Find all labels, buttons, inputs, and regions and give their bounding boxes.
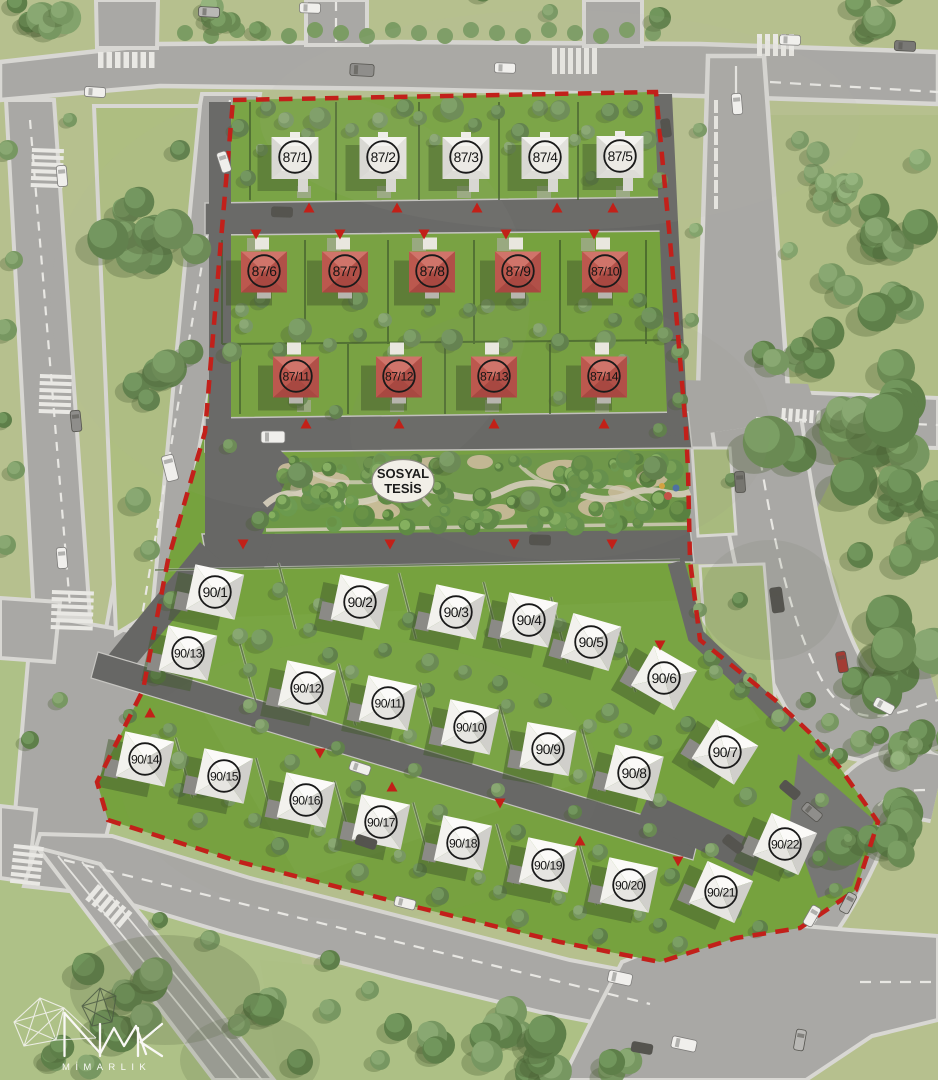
- svg-text:SOSYAL: SOSYAL: [377, 466, 429, 481]
- svg-text:90/4: 90/4: [517, 613, 543, 628]
- svg-text:87/10: 87/10: [591, 264, 620, 278]
- svg-text:87/4: 87/4: [533, 150, 559, 165]
- svg-text:90/16: 90/16: [292, 793, 321, 807]
- svg-text:87/13: 87/13: [480, 369, 509, 383]
- svg-text:90/3: 90/3: [444, 605, 470, 620]
- svg-text:87/11: 87/11: [282, 369, 310, 383]
- svg-text:90/21: 90/21: [707, 885, 736, 899]
- svg-text:90/20: 90/20: [615, 878, 644, 892]
- svg-text:90/22: 90/22: [771, 837, 800, 851]
- svg-text:90/12: 90/12: [293, 681, 322, 695]
- svg-text:90/5: 90/5: [579, 635, 605, 650]
- svg-text:90/11: 90/11: [374, 696, 402, 710]
- svg-text:87/8: 87/8: [420, 264, 446, 279]
- svg-text:87/14: 87/14: [590, 369, 619, 383]
- svg-text:87/9: 87/9: [506, 264, 532, 279]
- svg-text:90/1: 90/1: [203, 585, 228, 600]
- svg-text:90/17: 90/17: [367, 815, 396, 829]
- svg-text:90/13: 90/13: [174, 646, 203, 660]
- svg-text:87/3: 87/3: [454, 150, 480, 165]
- svg-text:90/10: 90/10: [456, 720, 485, 734]
- svg-text:90/14: 90/14: [131, 752, 160, 766]
- svg-text:90/15: 90/15: [210, 769, 239, 783]
- svg-text:90/6: 90/6: [652, 671, 678, 686]
- svg-text:90/7: 90/7: [713, 745, 738, 760]
- svg-text:90/8: 90/8: [622, 766, 648, 781]
- svg-text:87/1: 87/1: [283, 150, 308, 165]
- svg-text:87/7: 87/7: [333, 264, 358, 279]
- svg-text:87/6: 87/6: [252, 264, 278, 279]
- svg-text:90/9: 90/9: [536, 742, 562, 757]
- svg-text:90/19: 90/19: [534, 858, 563, 872]
- svg-text:TESİS: TESİS: [384, 481, 422, 496]
- svg-text:87/12: 87/12: [385, 369, 414, 383]
- svg-text:90/18: 90/18: [449, 836, 478, 850]
- svg-text:87/5: 87/5: [608, 149, 634, 164]
- svg-text:90/2: 90/2: [348, 595, 373, 610]
- svg-text:MİMARLIK: MİMARLIK: [62, 1061, 151, 1073]
- svg-text:87/2: 87/2: [371, 150, 396, 165]
